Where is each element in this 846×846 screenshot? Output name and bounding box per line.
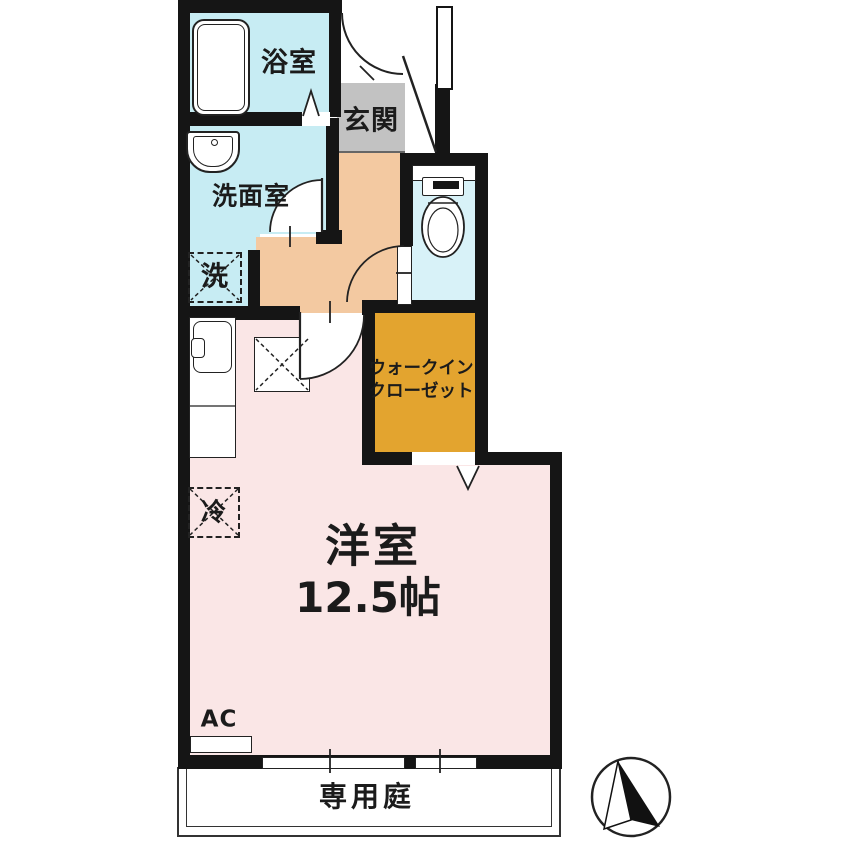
private-garden-label: 専用庭	[319, 783, 415, 811]
ac-label: AC	[201, 709, 238, 732]
entrance-door-tick	[360, 66, 374, 80]
washing-machine-label: 洗	[201, 264, 229, 291]
bathroom-label: 浴室	[261, 50, 317, 77]
garden-window-left	[262, 757, 405, 769]
floorplan-canvas: 浴室 玄関 洗面室 洗 ウォークイン クローゼット 洋室 12.5帖 冷 AC …	[0, 0, 846, 846]
western-room-label: 洋室	[325, 524, 421, 569]
kitchen-hatch-box	[254, 337, 310, 392]
wall-toilet-closet-band	[362, 300, 488, 313]
wall-top	[178, 0, 342, 13]
north-arrow-icon	[592, 758, 670, 836]
garden-window-right	[415, 757, 477, 769]
washroom-sink-drain	[211, 139, 218, 146]
entrance-door-arc	[342, 13, 403, 74]
hallway-upper-area	[339, 153, 402, 245]
toilet-flush-button	[433, 181, 459, 189]
closet-label-line1: ウォークイン	[369, 360, 474, 378]
bathroom-door-gap	[302, 112, 330, 126]
entrance-label: 玄関	[343, 108, 399, 135]
toilet-door-leaf	[397, 246, 412, 305]
wall-closet-bottom	[362, 452, 412, 465]
porch-wall	[436, 6, 453, 90]
wall-porch-post	[435, 84, 450, 156]
closet-label-line2: クローゼット	[369, 383, 474, 401]
washroom-label: 洗面室	[212, 184, 290, 209]
wall-right-lower	[550, 452, 562, 766]
bathtub-inner	[197, 24, 245, 111]
closet-door-gap	[412, 452, 475, 465]
western-room-size-label: 12.5帖	[295, 577, 441, 619]
wall-right-upper	[475, 153, 488, 458]
wall-step-top	[475, 452, 562, 465]
wall-bath-right	[329, 10, 341, 117]
refrigerator-label: 冷	[201, 500, 227, 525]
wall-junction-stub	[316, 230, 342, 244]
wall-alcove-right	[248, 250, 260, 312]
ac-unit	[190, 736, 252, 753]
entrance-door-leaf	[403, 56, 436, 152]
wall-washroom-right	[326, 118, 339, 239]
kitchen-faucet	[191, 338, 205, 358]
